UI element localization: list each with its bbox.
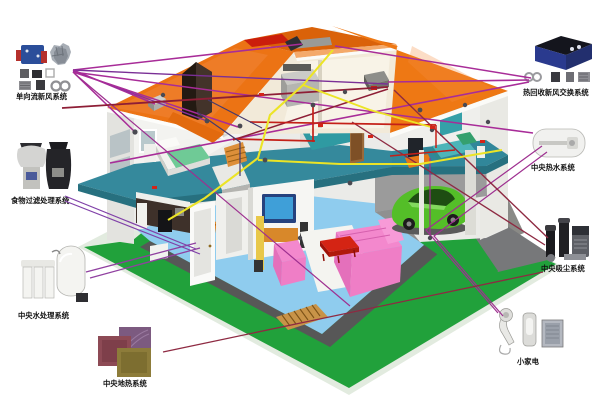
svg-text:食物过滤处理系统: 食物过滤处理系统: [10, 196, 70, 205]
svg-text:中央热水系统: 中央热水系统: [531, 163, 575, 172]
svg-text:热回收新风交换系统: 热回收新风交换系统: [523, 88, 589, 97]
svg-text:中央地热系统: 中央地热系统: [103, 379, 147, 388]
svg-text:中央水处理系统: 中央水处理系统: [18, 311, 70, 320]
svg-text:单向流新风系统: 单向流新风系统: [16, 92, 68, 101]
svg-text:小家电: 小家电: [516, 357, 540, 366]
svg-text:中央吸尘系统: 中央吸尘系统: [541, 264, 585, 273]
